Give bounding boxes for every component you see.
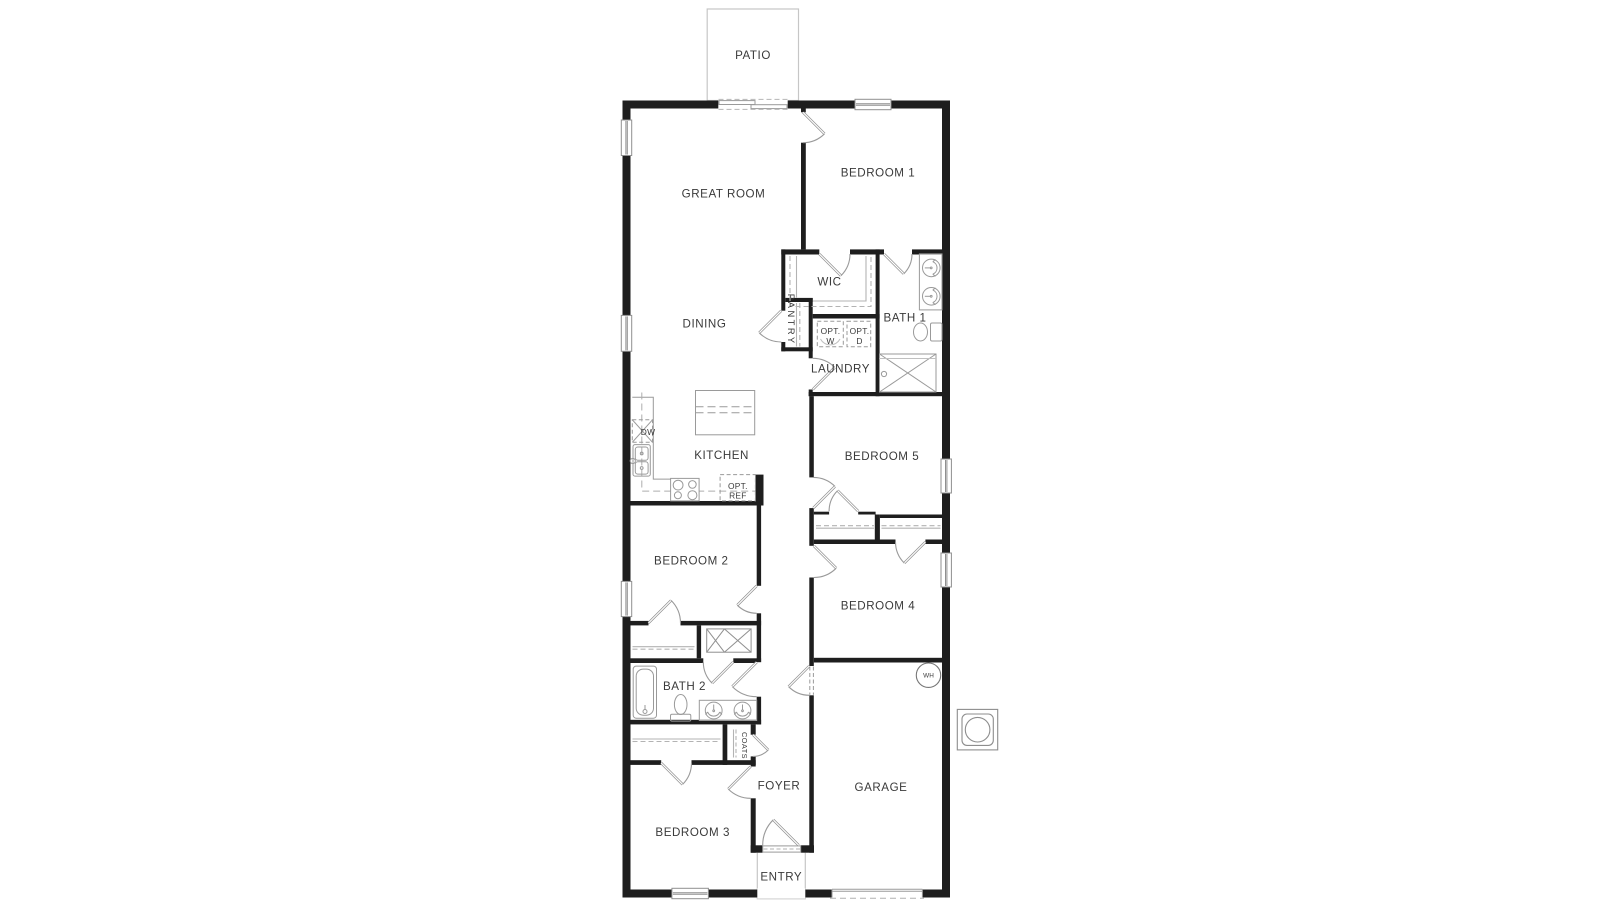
svg-text:PANTRY: PANTRY <box>786 294 796 346</box>
svg-text:OPT.: OPT. <box>850 326 870 336</box>
svg-text:ENTRY: ENTRY <box>760 871 802 884</box>
svg-text:WIC: WIC <box>817 276 841 289</box>
svg-text:W: W <box>826 336 834 346</box>
svg-text:KITCHEN: KITCHEN <box>694 449 749 462</box>
svg-text:BATH 2: BATH 2 <box>663 680 706 693</box>
svg-text:PATIO: PATIO <box>735 49 771 62</box>
svg-text:FOYER: FOYER <box>758 780 801 793</box>
svg-text:BATH 1: BATH 1 <box>883 312 926 325</box>
svg-text:BEDROOM 1: BEDROOM 1 <box>841 167 916 180</box>
svg-text:GREAT ROOM: GREAT ROOM <box>682 188 766 201</box>
svg-text:OPT.: OPT. <box>821 326 841 336</box>
svg-text:LAUNDRY: LAUNDRY <box>811 363 870 376</box>
svg-text:BEDROOM 4: BEDROOM 4 <box>841 600 916 613</box>
svg-text:BEDROOM 5: BEDROOM 5 <box>845 450 920 463</box>
svg-text:BEDROOM 2: BEDROOM 2 <box>654 555 729 568</box>
svg-text:COATS: COATS <box>740 732 749 759</box>
svg-text:REF: REF <box>729 491 747 501</box>
svg-text:DINING: DINING <box>683 317 727 330</box>
svg-text:BEDROOM 3: BEDROOM 3 <box>655 826 730 839</box>
svg-text:D: D <box>856 336 862 346</box>
svg-text:GARAGE: GARAGE <box>855 781 908 794</box>
svg-text:WH: WH <box>923 673 934 680</box>
svg-text:DW: DW <box>641 427 656 437</box>
svg-text:OPT.: OPT. <box>728 481 748 491</box>
